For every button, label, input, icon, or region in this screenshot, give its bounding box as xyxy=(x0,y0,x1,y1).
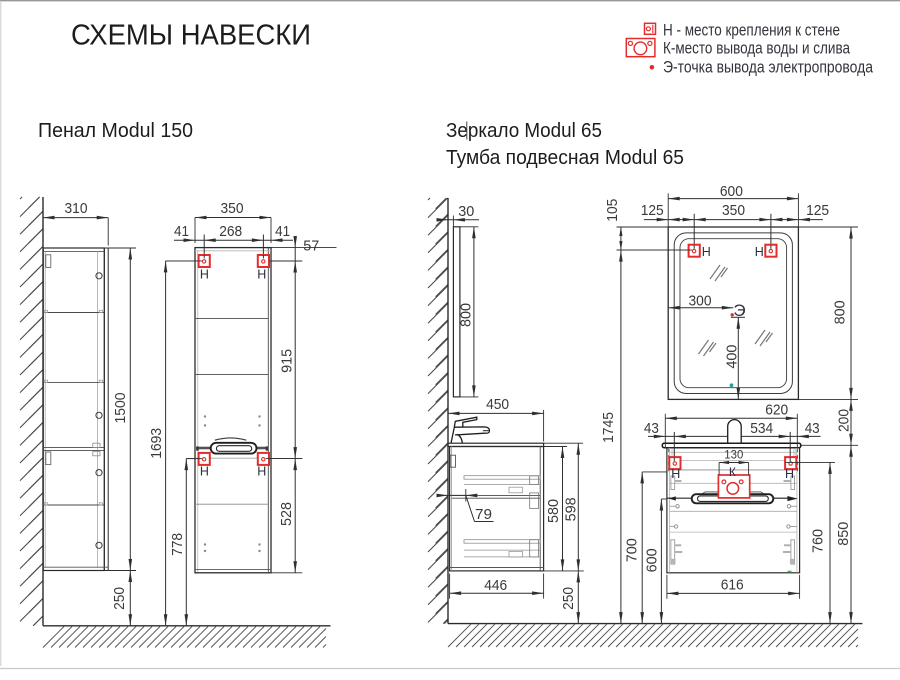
svg-text:Н: Н xyxy=(702,245,711,259)
svg-text:Зеркало Modul 65: Зеркало Modul 65 xyxy=(446,120,602,142)
svg-text:350: 350 xyxy=(221,200,244,217)
svg-text:Э-точка вывода электропровода: Э-точка вывода электропровода xyxy=(663,59,874,77)
svg-text:250: 250 xyxy=(560,587,577,610)
svg-text:598: 598 xyxy=(562,497,579,521)
svg-text:800: 800 xyxy=(458,303,475,327)
svg-text:43: 43 xyxy=(805,420,820,437)
svg-text:Н: Н xyxy=(671,467,680,481)
svg-text:600: 600 xyxy=(644,548,661,572)
svg-text:41: 41 xyxy=(275,223,290,240)
svg-text:Н: Н xyxy=(257,267,266,281)
svg-text:915: 915 xyxy=(278,349,295,373)
svg-text:К: К xyxy=(729,465,736,479)
svg-text:41: 41 xyxy=(174,223,189,240)
svg-text:616: 616 xyxy=(721,577,744,594)
svg-text:1745: 1745 xyxy=(600,412,617,443)
svg-text:300: 300 xyxy=(689,292,712,309)
svg-text:250: 250 xyxy=(111,587,128,610)
svg-text:600: 600 xyxy=(720,183,743,200)
svg-text:130: 130 xyxy=(724,450,743,462)
svg-text:К-место вывода воды и слива: К-место вывода воды и слива xyxy=(663,40,851,58)
svg-text:310: 310 xyxy=(65,200,88,217)
svg-text:528: 528 xyxy=(278,502,295,526)
svg-text:125: 125 xyxy=(641,202,664,219)
svg-text:446: 446 xyxy=(484,577,507,594)
svg-text:Пенал Modul 150: Пенал Modul 150 xyxy=(38,120,193,142)
svg-text:400: 400 xyxy=(724,345,741,369)
svg-text:534: 534 xyxy=(750,420,773,437)
svg-text:580: 580 xyxy=(545,499,562,523)
svg-text:Н - место крепления к стене: Н - место крепления к стене xyxy=(663,21,840,39)
svg-text:105: 105 xyxy=(604,199,621,222)
svg-text:Тумба подвесная Modul 65: Тумба подвесная Modul 65 xyxy=(446,147,684,169)
svg-text:СХЕМЫ НАВЕСКИ: СХЕМЫ НАВЕСКИ xyxy=(71,20,311,52)
svg-text:350: 350 xyxy=(722,202,745,219)
svg-text:778: 778 xyxy=(169,533,186,556)
svg-text:268: 268 xyxy=(219,223,242,240)
svg-text:125: 125 xyxy=(806,202,829,219)
svg-text:850: 850 xyxy=(835,522,852,546)
svg-text:760: 760 xyxy=(810,529,827,553)
svg-text:200: 200 xyxy=(836,409,853,432)
svg-text:57: 57 xyxy=(303,237,319,254)
svg-text:1500: 1500 xyxy=(112,393,129,424)
svg-text:43: 43 xyxy=(644,420,659,437)
svg-text:Н: Н xyxy=(755,245,764,259)
svg-text:450: 450 xyxy=(486,396,509,413)
svg-text:620: 620 xyxy=(765,401,788,418)
svg-text:Н: Н xyxy=(785,467,794,481)
svg-text:700: 700 xyxy=(624,538,641,562)
svg-text:Н: Н xyxy=(257,464,266,478)
svg-text:30: 30 xyxy=(458,203,474,220)
svg-text:800: 800 xyxy=(832,300,849,324)
svg-text:Н: Н xyxy=(200,464,209,478)
svg-text:Н: Н xyxy=(200,267,209,281)
svg-text:79: 79 xyxy=(475,506,492,523)
svg-text:1693: 1693 xyxy=(148,428,165,459)
